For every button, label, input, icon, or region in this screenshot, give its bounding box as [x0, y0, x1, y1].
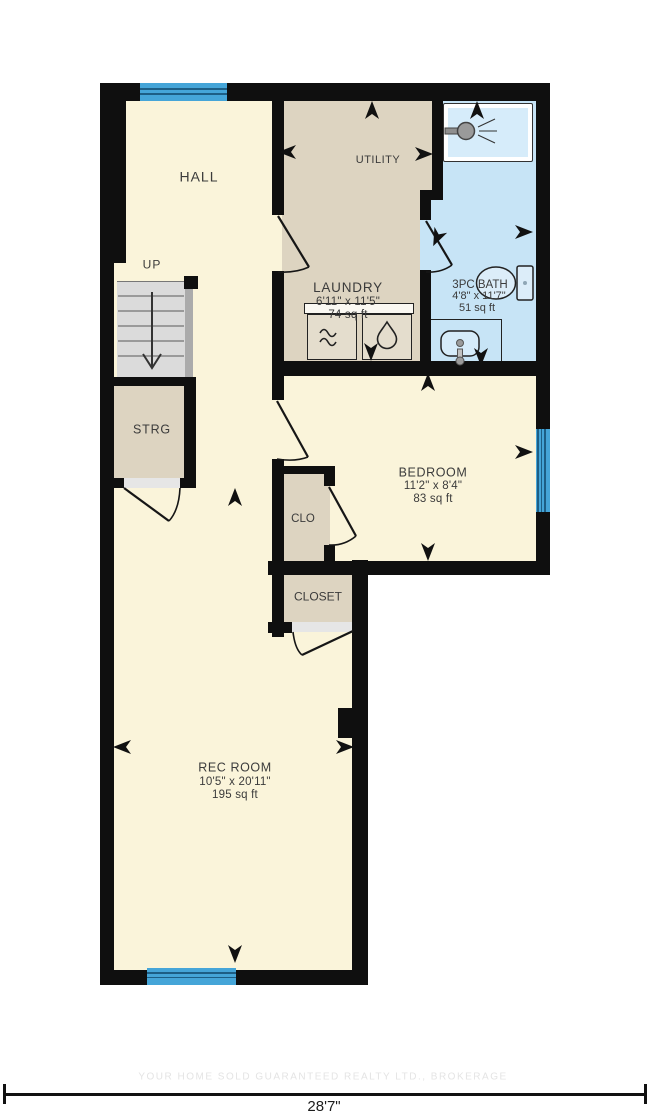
bedroom-label: BEDROOM: [399, 466, 468, 479]
strg-door: [124, 488, 180, 521]
arrow-utility-top: [365, 101, 379, 119]
bath-label: 3PC BATH: [452, 279, 507, 291]
laundry-label: LAUNDRY: [313, 281, 383, 295]
floor-plan-canvas: HALL UP UTILITY LAUNDRY 6'11" x 11'5" 74…: [0, 0, 650, 1120]
sink-icon: [441, 331, 479, 365]
bedroom-area: 83 sq ft: [413, 493, 452, 505]
strg-label: STRG: [133, 423, 171, 436]
bedroom-door: [277, 401, 308, 460]
overall-width-label: 28'7": [307, 1099, 340, 1115]
bath-area: 51 sq ft: [459, 303, 495, 315]
dimension-tick-right: [644, 1084, 647, 1104]
arrow-bath-door: [427, 227, 447, 249]
dimension-tick-left: [3, 1084, 6, 1104]
rec-room-dims: 10'5" x 20'11": [199, 776, 270, 788]
arrow-bedroom-window: [515, 445, 533, 459]
closet-label: CLOSET: [294, 591, 342, 604]
direction-arrows: [113, 101, 533, 963]
laundry-area: 74 sq ft: [328, 309, 367, 321]
arrow-bedroom-bottom: [421, 543, 435, 561]
plan-symbols-layer: [0, 0, 650, 1120]
bedroom-dims: 11'2" x 8'4": [404, 480, 462, 492]
stairs-direction-arrow: [143, 292, 161, 368]
arrow-rec-left: [113, 740, 131, 754]
arrow-laundry-down: [364, 343, 378, 361]
arrow-rec-right: [336, 740, 354, 754]
washer-icon: [320, 330, 336, 346]
bath-door: [426, 221, 452, 272]
hall-label: HALL: [179, 170, 218, 185]
arrow-bedroom-top: [421, 373, 435, 391]
dimension-line: [4, 1093, 646, 1096]
utility-door: [278, 216, 309, 272]
arrow-utility-left: [278, 145, 296, 159]
arrow-hall-up: [228, 488, 242, 506]
shower-head-icon: [445, 119, 497, 143]
arrow-bath-right: [515, 225, 533, 239]
laundry-dims: 6'11" x 11'5": [316, 296, 380, 308]
clo-label: CLO: [291, 513, 315, 525]
arrow-shower-top: [470, 101, 484, 119]
bath-dims: 4'8" x 11'7": [452, 291, 505, 303]
dryer-icon: [378, 322, 397, 349]
closet-door: [293, 631, 353, 655]
clo-door: [329, 487, 356, 545]
rec-room-area: 195 sq ft: [212, 789, 258, 801]
arrow-rec-bottom: [228, 945, 242, 963]
stairs-up-label: UP: [143, 259, 162, 272]
rec-room-label: REC ROOM: [198, 761, 272, 774]
utility-label: UTILITY: [356, 155, 400, 167]
arrow-utility-right: [415, 147, 433, 161]
arrow-bath-sink-down: [474, 348, 488, 366]
